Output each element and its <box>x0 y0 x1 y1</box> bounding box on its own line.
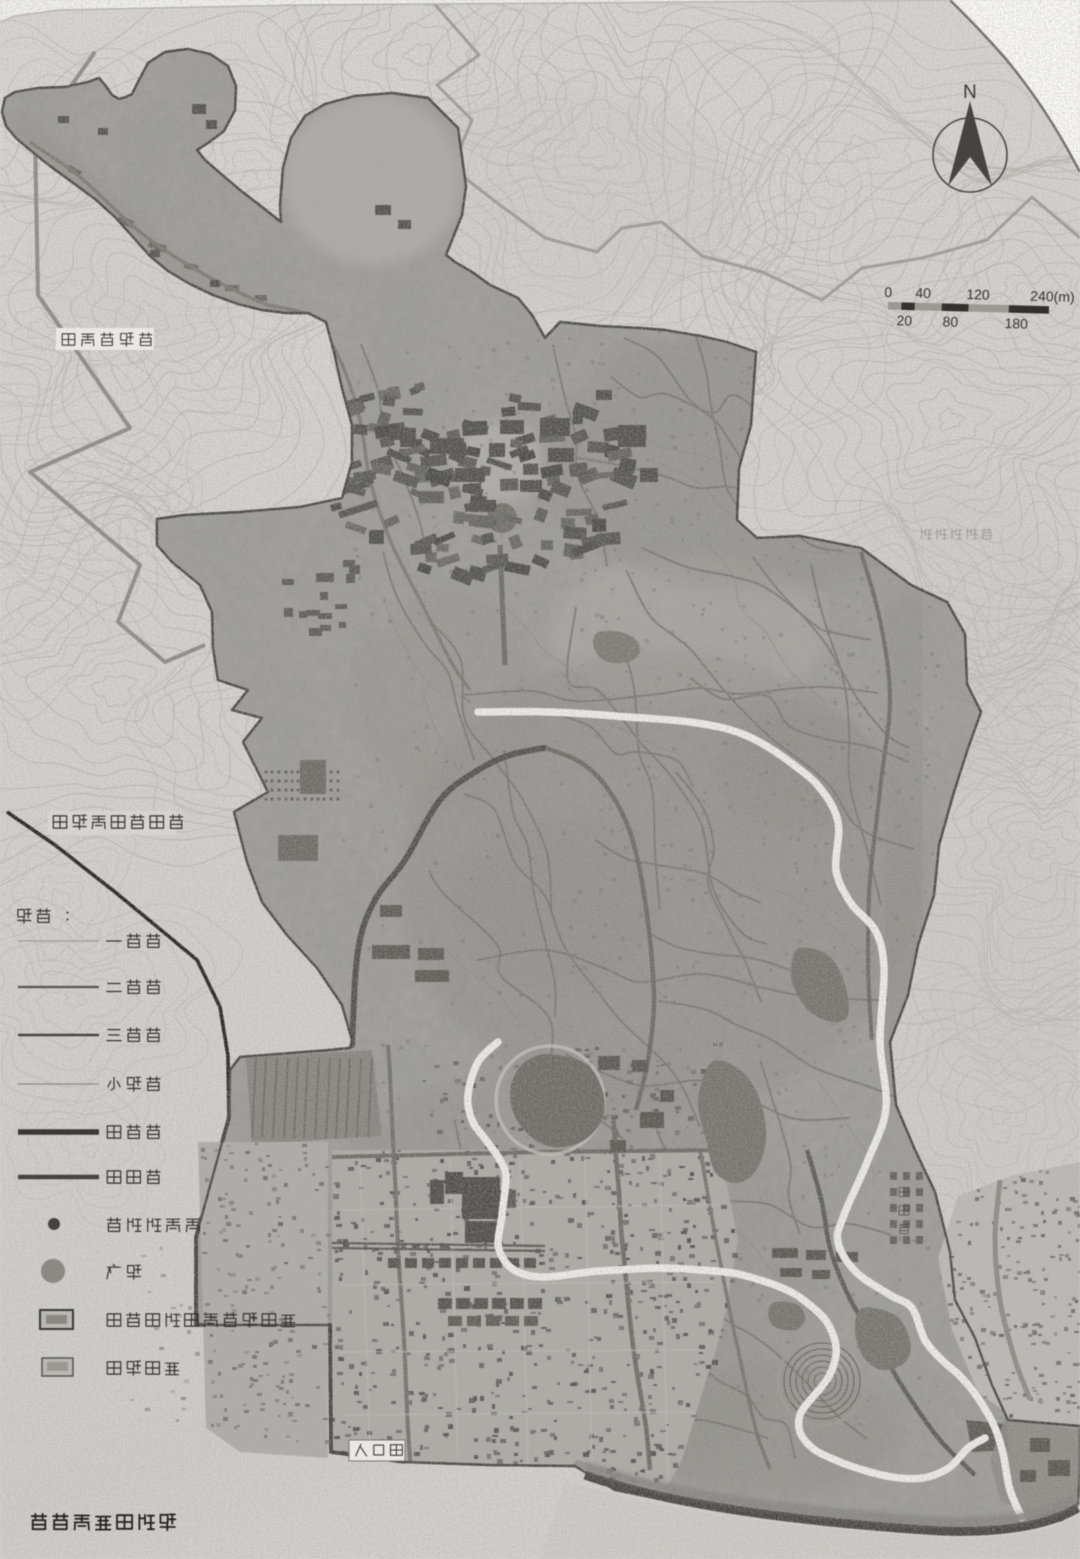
svg-text:N: N <box>963 82 977 103</box>
svg-text:240(m): 240(m) <box>1030 288 1075 305</box>
svg-text:120: 120 <box>966 286 990 303</box>
svg-text:20: 20 <box>896 312 912 328</box>
svg-text:180: 180 <box>1004 315 1028 332</box>
svg-text:0: 0 <box>884 284 892 300</box>
svg-text:80: 80 <box>942 313 958 329</box>
svg-text:40: 40 <box>915 285 931 301</box>
